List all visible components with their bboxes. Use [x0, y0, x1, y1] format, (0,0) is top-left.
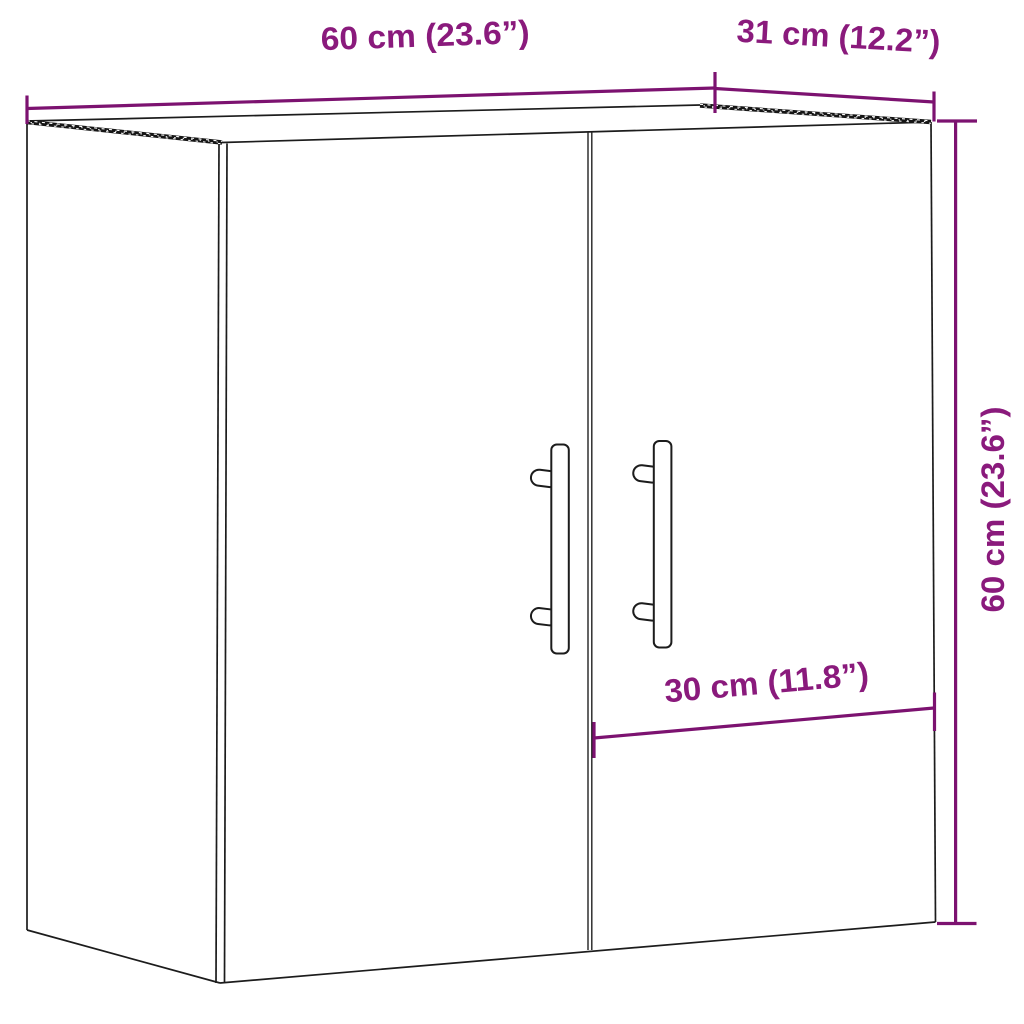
svg-text:60 cm (23.6”): 60 cm (23.6”) [975, 407, 1011, 613]
svg-text:60 cm (23.6”): 60 cm (23.6”) [320, 14, 530, 57]
